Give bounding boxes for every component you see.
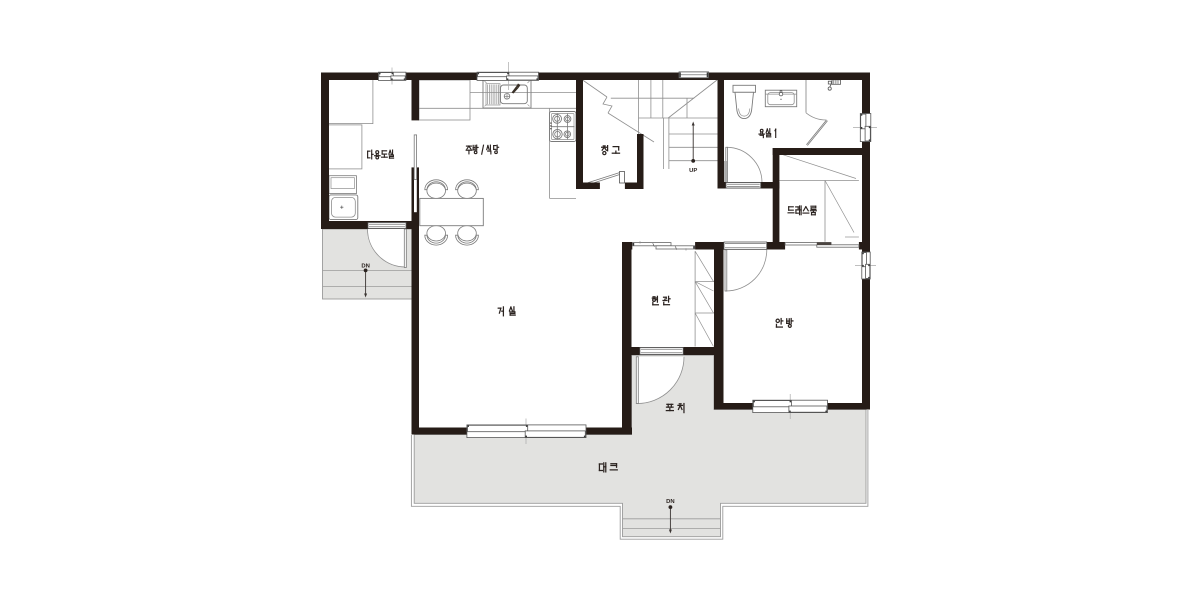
svg-text:DN: DN (666, 499, 675, 505)
svg-text:UP: UP (689, 168, 697, 174)
svg-text:DN: DN (361, 263, 370, 269)
